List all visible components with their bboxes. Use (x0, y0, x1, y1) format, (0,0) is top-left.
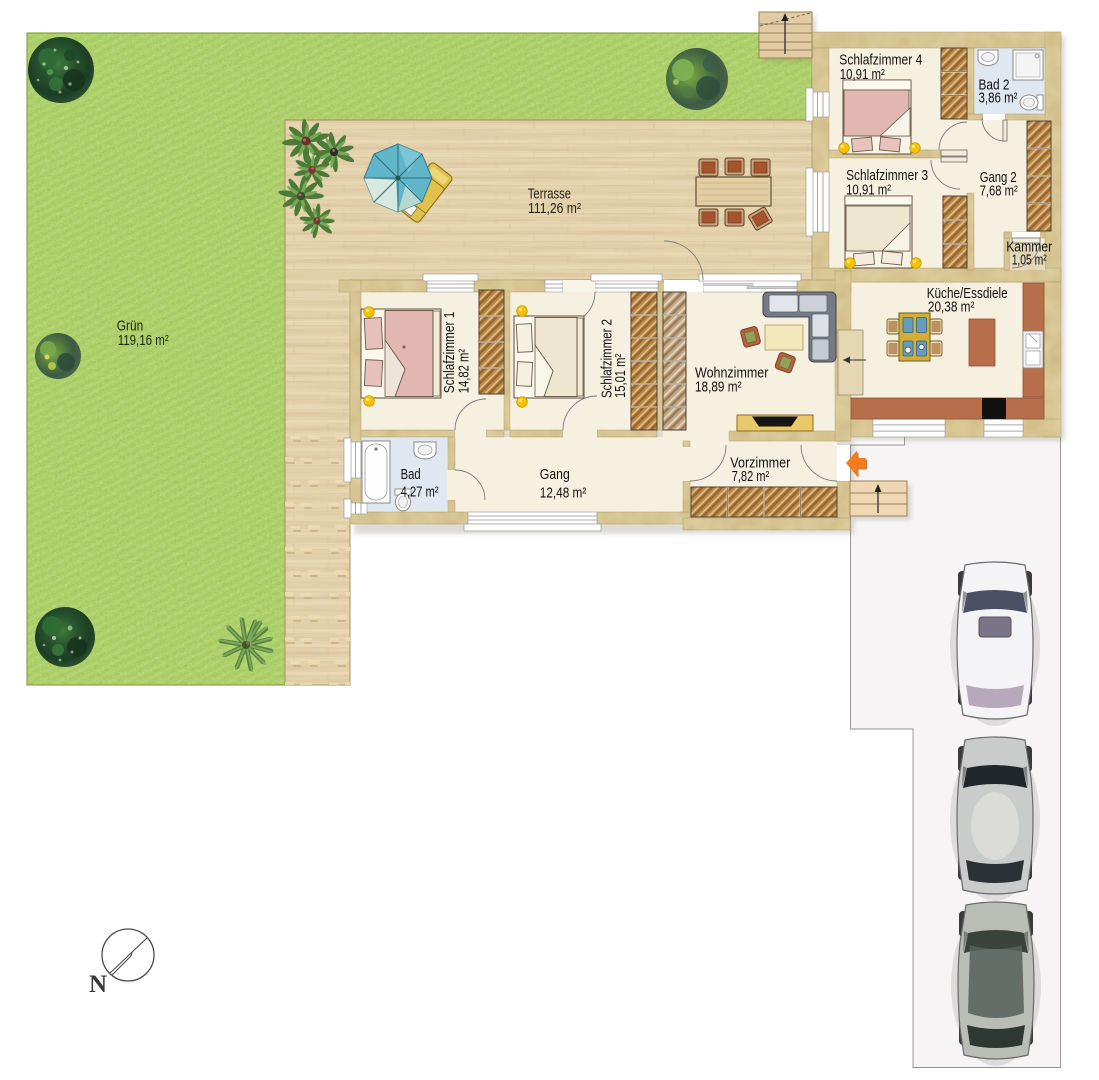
svg-text:4,27 m²: 4,27 m² (401, 485, 439, 501)
svg-text:18,89 m²: 18,89 m² (695, 379, 742, 395)
svg-text:Bad: Bad (401, 467, 421, 483)
svg-text:10,91 m²: 10,91 m² (846, 183, 891, 199)
svg-text:20,38 m²: 20,38 m² (928, 299, 975, 315)
svg-text:10,91 m²: 10,91 m² (840, 67, 885, 83)
svg-text:12,48 m²: 12,48 m² (540, 486, 587, 502)
svg-text:119,16 m²: 119,16 m² (118, 333, 169, 349)
svg-text:15,01 m²: 15,01 m² (613, 354, 629, 398)
svg-text:Terrasse: Terrasse (528, 186, 571, 202)
svg-text:111,26 m²: 111,26 m² (528, 201, 581, 217)
svg-text:Gang: Gang (540, 467, 570, 483)
svg-text:1,05 m²: 1,05 m² (1012, 253, 1047, 269)
svg-text:N: N (89, 971, 107, 998)
svg-text:3,86 m²: 3,86 m² (979, 91, 1018, 107)
svg-text:7,82 m²: 7,82 m² (732, 469, 770, 485)
svg-text:Schlafzimmer 1: Schlafzimmer 1 (442, 312, 458, 394)
svg-text:7,68 m²: 7,68 m² (980, 183, 1018, 199)
svg-text:Schlafzimmer 3: Schlafzimmer 3 (846, 168, 928, 184)
svg-text:14,82 m²: 14,82 m² (457, 349, 473, 393)
